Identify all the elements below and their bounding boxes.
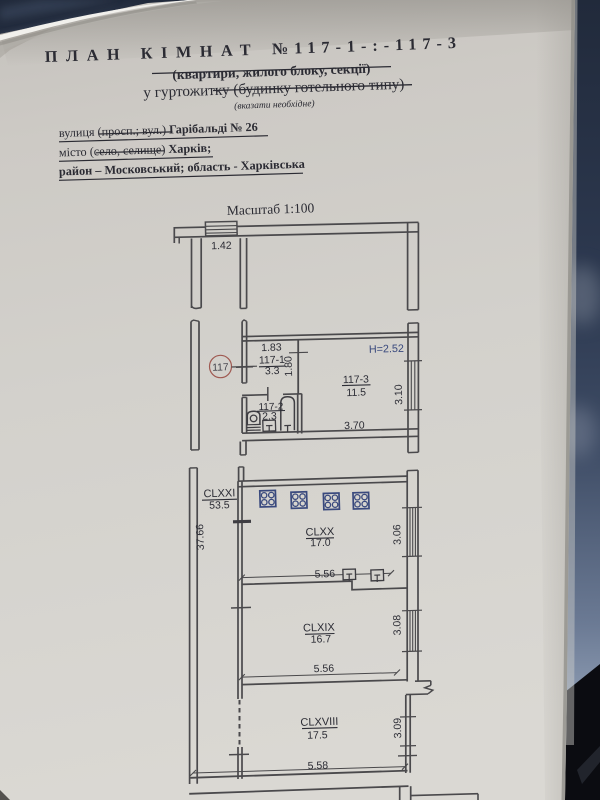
- svg-text:37.66: 37.66: [194, 524, 207, 551]
- svg-text:CLXXI: CLXXI: [203, 487, 235, 500]
- svg-text:16.7: 16.7: [311, 633, 332, 646]
- svg-text:3.3: 3.3: [265, 365, 280, 377]
- svg-text:3.09: 3.09: [392, 718, 405, 739]
- svg-text:17.0: 17.0: [310, 537, 331, 550]
- svg-text:3.10: 3.10: [393, 384, 406, 405]
- svg-text:2.3: 2.3: [262, 410, 277, 422]
- svg-text:117-3: 117-3: [343, 373, 370, 386]
- svg-text:1.83: 1.83: [261, 341, 282, 354]
- svg-text:H=2.52: H=2.52: [369, 343, 404, 356]
- svg-text:117: 117: [212, 362, 229, 373]
- svg-text:1.80: 1.80: [282, 356, 295, 377]
- svg-text:17.5: 17.5: [307, 729, 328, 742]
- svg-text:Масштаб 1:100: Масштаб 1:100: [227, 200, 315, 218]
- svg-text:5.56: 5.56: [314, 663, 335, 676]
- svg-text:5.58: 5.58: [308, 760, 329, 773]
- svg-text:1.42: 1.42: [211, 240, 232, 253]
- svg-text:53.5: 53.5: [209, 499, 230, 512]
- svg-text:3.08: 3.08: [391, 615, 404, 636]
- svg-text:11.5: 11.5: [346, 387, 366, 400]
- svg-text:3.06: 3.06: [391, 524, 404, 545]
- svg-text:3.70: 3.70: [344, 419, 365, 432]
- svg-text:CLXVIII: CLXVIII: [300, 716, 338, 729]
- svg-text:5.56: 5.56: [315, 568, 336, 581]
